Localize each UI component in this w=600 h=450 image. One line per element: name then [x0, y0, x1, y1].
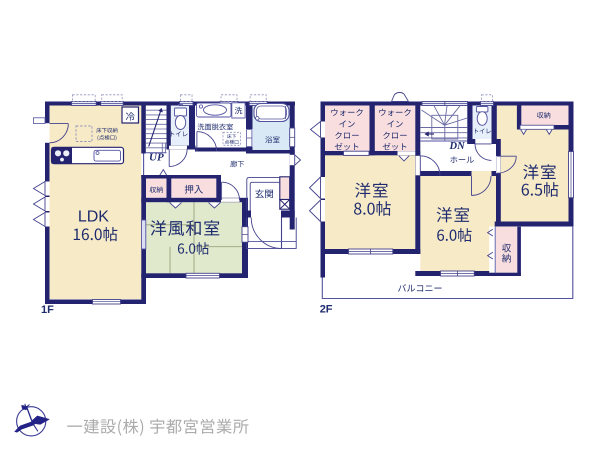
svg-text:UP: UP — [149, 152, 164, 164]
svg-text:LDK: LDK — [78, 209, 109, 226]
svg-text:2F: 2F — [320, 304, 333, 316]
svg-text:DN: DN — [449, 141, 466, 152]
svg-text:1F: 1F — [41, 304, 54, 316]
